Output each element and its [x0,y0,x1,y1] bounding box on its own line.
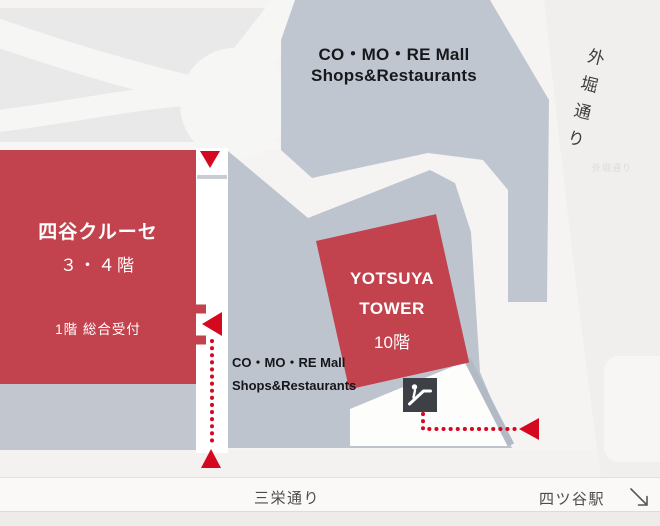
bottom-margin [0,512,660,526]
street-label-sanei: 三栄通り [232,487,342,508]
cruse-name: 四谷クルーセ [10,217,186,244]
street-label-sotobori-small: 外堀通り [592,161,632,174]
yotsuya-cruse-label: 四谷クルーセ ３・４階 1階 総合受付 [10,217,186,338]
cruse-lower-block [0,384,196,450]
street-edge-line-2 [0,511,660,512]
escalator-person-head [412,384,417,389]
road-edge [0,142,280,150]
tower-floors: 10階 [328,328,456,353]
entrance-tab-upper [196,305,206,314]
comore-podium-line2: Shops&Restaurants [232,374,392,397]
campus-access-map: CO・MO・RE Mall Shops&Restaurants 四谷クルーセ ３… [0,0,660,526]
walkway-strip [196,148,228,453]
comore-podium-label: CO・MO・RE Mall Shops&Restaurants [232,351,392,397]
comore-podium-line1: CO・MO・RE Mall [232,351,392,374]
cruse-floors: ３・４階 [10,251,186,276]
walkway-crossbar [197,175,227,179]
yotsuya-tower-label: YOTSUYA TOWER 10階 [328,269,456,353]
comore-main-line1: CO・MO・RE Mall [278,44,510,65]
tower-name-line2: TOWER [328,299,456,319]
comore-main-label: CO・MO・RE Mall Shops&Restaurants [278,44,510,86]
escalator-icon [403,378,437,412]
street-edge-line [0,477,660,478]
comore-main-line2: Shops&Restaurants [278,65,510,86]
tower-name-line1: YOTSUYA [328,269,456,289]
station-block [604,356,660,462]
escalator-person-body [414,391,416,398]
lower-ground [0,450,660,477]
entrance-tab-lower [196,336,206,345]
cruse-reception: 1階 総合受付 [10,318,186,338]
station-label: 四ツ谷駅 [539,488,605,509]
